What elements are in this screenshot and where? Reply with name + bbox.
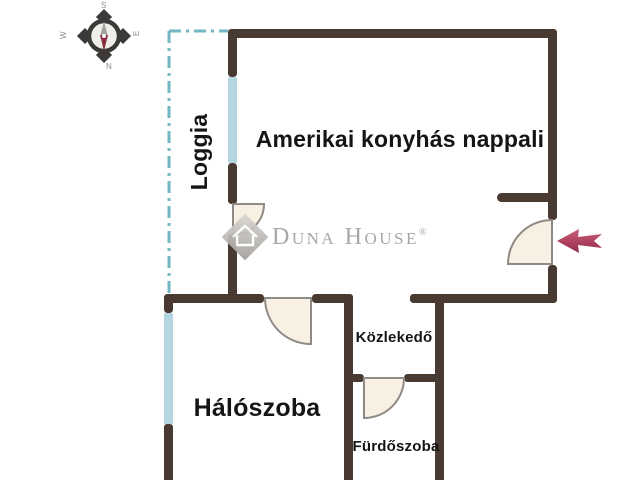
floor-plan: S N W E (0, 0, 640, 480)
room-label-loggia: Loggia (186, 82, 214, 222)
door-entrance (508, 220, 552, 264)
compass-label-south: S (101, 1, 106, 10)
entrance-arrow-icon (557, 229, 602, 253)
door-bathroom (364, 378, 404, 418)
dunahouse-watermark: Duna House® (218, 210, 448, 266)
registered-mark: ® (419, 227, 427, 238)
brand-name: Duna House (272, 224, 419, 250)
door-bedroom (265, 298, 311, 344)
diamond-house-icon (218, 210, 272, 264)
compass-label-east: E (132, 31, 141, 36)
room-label-bedroom: Hálószoba (157, 394, 357, 423)
room-label-living-room: Amerikai konyhás nappali (240, 126, 560, 153)
watermark-brand-text: Duna House® (272, 224, 427, 251)
compass-rose-icon: S N W E (59, 1, 141, 71)
room-label-hallway: Közlekedő (344, 329, 444, 346)
compass-label-west: W (59, 31, 68, 39)
compass-label-north: N (106, 62, 112, 71)
room-label-bathroom: Fürdőszoba (346, 438, 446, 455)
